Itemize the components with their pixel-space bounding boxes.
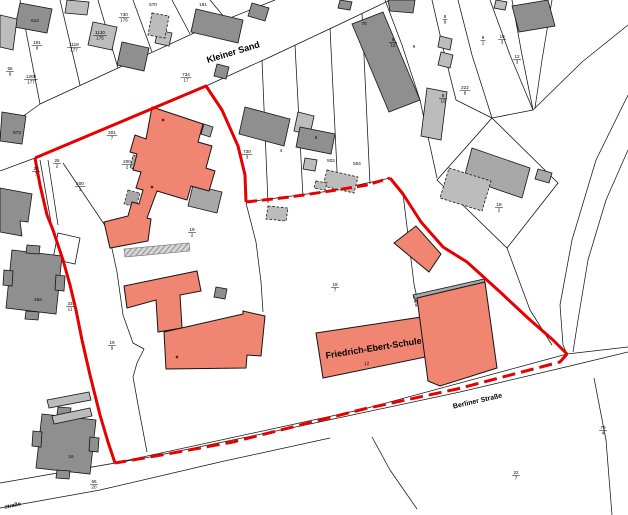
bike-rack-strip: [124, 243, 190, 257]
svg-text:8: 8: [444, 14, 447, 19]
svg-text:3: 3: [246, 154, 249, 159]
svg-text:11: 11: [68, 306, 73, 311]
label-street-kleiner-sand: Kleiner Sand: [205, 39, 261, 65]
svg-text:1208: 1208: [26, 74, 37, 79]
shelter-dashed: [266, 206, 288, 221]
parcel-label-9: 9: [413, 44, 416, 49]
building: [6, 250, 62, 314]
parcel-line: [330, 28, 338, 191]
svg-text:79: 79: [600, 425, 606, 430]
svg-text:177: 177: [27, 79, 35, 84]
parcel-label-16: 16: [68, 454, 74, 459]
svg-text:18: 18: [496, 202, 502, 207]
svg-text:19: 19: [109, 340, 115, 345]
svg-text:55: 55: [7, 66, 13, 71]
street-edge: [560, 95, 628, 354]
parcel-label-614: 614: [31, 18, 39, 23]
svg-text:22: 22: [513, 470, 519, 475]
svg-text:7: 7: [515, 475, 518, 480]
svg-text:4: 4: [602, 430, 605, 435]
parcel-label-70: 70: [361, 21, 367, 26]
street-edge: [567, 347, 628, 354]
parcel-number-12-3: 123: [513, 54, 521, 64]
building: [512, 0, 555, 32]
parcel-number-1118-177: 1118177: [67, 42, 81, 52]
building: [323, 170, 358, 193]
building: [89, 437, 99, 452]
building: [65, 0, 89, 15]
parcel-label-502: 502: [327, 158, 335, 163]
svg-text:1: 1: [482, 40, 485, 45]
building: [0, 112, 26, 144]
svg-text:2: 2: [498, 207, 501, 212]
parcel-number-79-4: 794: [599, 425, 607, 435]
parcel-label-570: 570: [149, 2, 157, 7]
svg-text:3: 3: [501, 39, 504, 44]
svg-text:2: 2: [191, 232, 194, 237]
svg-text:734: 734: [182, 72, 190, 77]
svg-text:191: 191: [33, 40, 41, 45]
buildings-neighbourhood: [0, 0, 555, 479]
svg-text:200: 200: [76, 181, 84, 186]
building: [214, 64, 229, 79]
parcel-label-973: 973: [13, 130, 21, 135]
svg-text:20: 20: [91, 484, 97, 489]
building: [303, 158, 317, 171]
svg-text:8: 8: [464, 90, 467, 95]
building: [0, 188, 32, 236]
parcel-number-19-2: 192: [188, 227, 196, 237]
building: [191, 9, 243, 43]
small-outbuilding: [214, 287, 227, 299]
svg-text:9: 9: [444, 19, 447, 24]
school-building-north: [104, 107, 215, 248]
cadastral-map: Kleiner SandBerliner StraßestraßeFriedri…: [0, 0, 628, 515]
building: [352, 12, 420, 112]
svg-text:10: 10: [499, 34, 505, 39]
svg-text:7: 7: [111, 135, 114, 140]
parcel-number-22-7: 227: [512, 470, 520, 480]
parcel-number-55-9: 559: [6, 66, 14, 76]
house-number-mark: [151, 186, 153, 188]
label-street-partial-strasse: straße: [4, 501, 21, 510]
svg-text:8: 8: [392, 37, 395, 42]
building: [55, 275, 65, 291]
svg-text:7: 7: [334, 287, 337, 292]
parcel-number-734-17: 73417: [181, 72, 192, 82]
parcel-number-25-2: 252: [53, 158, 61, 168]
svg-text:12: 12: [390, 42, 396, 47]
label-street-berliner-strasse: Berliner Straße: [452, 392, 503, 410]
svg-text:19: 19: [332, 282, 338, 287]
parcel-label-6: 6: [315, 135, 318, 140]
parcel-line: [133, 0, 152, 52]
svg-text:33: 33: [67, 301, 73, 306]
building: [36, 414, 96, 474]
parcel-number-200-1: 2001: [75, 181, 86, 191]
parcel-number-301-7: 3017: [107, 130, 118, 140]
street-edge: [0, 158, 35, 171]
parcel-label-181: 181: [199, 2, 207, 7]
svg-text:222: 222: [461, 85, 469, 90]
building: [388, 0, 415, 13]
parcel-number-730-176: 730176: [119, 12, 130, 22]
svg-text:730: 730: [120, 12, 128, 17]
parcel-label-4: 4: [280, 148, 283, 153]
street-edge: [0, 352, 628, 483]
parcel-number-8-9: 89: [443, 14, 448, 24]
parcel-number-730-3: 7303: [242, 149, 253, 159]
svg-text:175: 175: [96, 35, 104, 40]
street-edge: [573, 150, 628, 352]
parcel-line: [372, 437, 417, 509]
svg-text:3: 3: [516, 59, 519, 64]
building: [314, 181, 327, 190]
building: [338, 0, 352, 10]
building: [248, 3, 269, 21]
parcel-line: [458, 0, 492, 118]
building: [438, 52, 453, 68]
building: [0, 15, 17, 50]
building: [494, 0, 507, 10]
map-canvas[interactable]: Kleiner SandBerliner StraßestraßeFriedri…: [0, 0, 628, 515]
building: [239, 107, 290, 146]
parcel-line: [507, 248, 552, 345]
parcel-label-504: 504: [353, 161, 361, 166]
svg-text:200: 200: [123, 159, 131, 164]
svg-text:9: 9: [9, 71, 12, 76]
parcel-line: [246, 203, 263, 312]
garage-row: [47, 392, 91, 408]
building: [3, 270, 13, 286]
parcel-number-10-3: 103: [498, 34, 506, 44]
svg-text:20: 20: [33, 166, 39, 171]
svg-text:19: 19: [189, 227, 195, 232]
parcel-label-46a: 46a: [34, 297, 42, 302]
svg-text:730: 730: [243, 149, 251, 154]
building: [26, 245, 40, 254]
parcel-line: [492, 110, 533, 118]
school-gym-building: [417, 282, 497, 386]
svg-text:176: 176: [120, 17, 128, 22]
school-building-west-upper: [124, 271, 201, 332]
parcel-number-8-1: 81: [481, 35, 486, 45]
building: [148, 13, 169, 38]
parcel-number-191-8: 1918: [32, 40, 43, 50]
svg-text:8: 8: [442, 93, 445, 98]
building: [438, 36, 452, 50]
svg-text:1: 1: [79, 186, 82, 191]
svg-text:2: 2: [126, 164, 129, 169]
svg-text:1118: 1118: [69, 42, 79, 47]
parcel-line: [594, 378, 612, 515]
parcel-number-66-20: 6620: [90, 479, 98, 489]
school-building-northeast: [394, 226, 441, 272]
svg-text:9: 9: [111, 345, 114, 350]
svg-text:1120: 1120: [95, 30, 105, 35]
parcel-line: [172, 0, 190, 34]
svg-text:177: 177: [70, 47, 78, 52]
svg-text:12: 12: [514, 54, 520, 59]
apartment-block: [3, 245, 65, 320]
svg-text:2: 2: [56, 163, 59, 168]
svg-text:17: 17: [183, 77, 189, 82]
parcel-number-19-7: 197: [331, 282, 339, 292]
svg-text:66: 66: [91, 479, 97, 484]
svg-text:8: 8: [36, 45, 39, 50]
house-number-mark: [176, 356, 178, 358]
building: [25, 311, 39, 320]
svg-text:7: 7: [35, 171, 38, 176]
svg-text:10: 10: [440, 98, 446, 103]
building: [56, 470, 70, 479]
svg-text:301: 301: [108, 130, 116, 135]
parcel-number-222-8: 2228: [460, 85, 471, 95]
building: [296, 127, 335, 154]
svg-text:8: 8: [482, 35, 485, 40]
house-number-mark: [162, 119, 164, 121]
parcel-number-19-9: 199: [108, 340, 116, 350]
svg-text:25: 25: [54, 158, 60, 163]
building: [32, 431, 42, 447]
parcel-line: [533, 25, 628, 110]
